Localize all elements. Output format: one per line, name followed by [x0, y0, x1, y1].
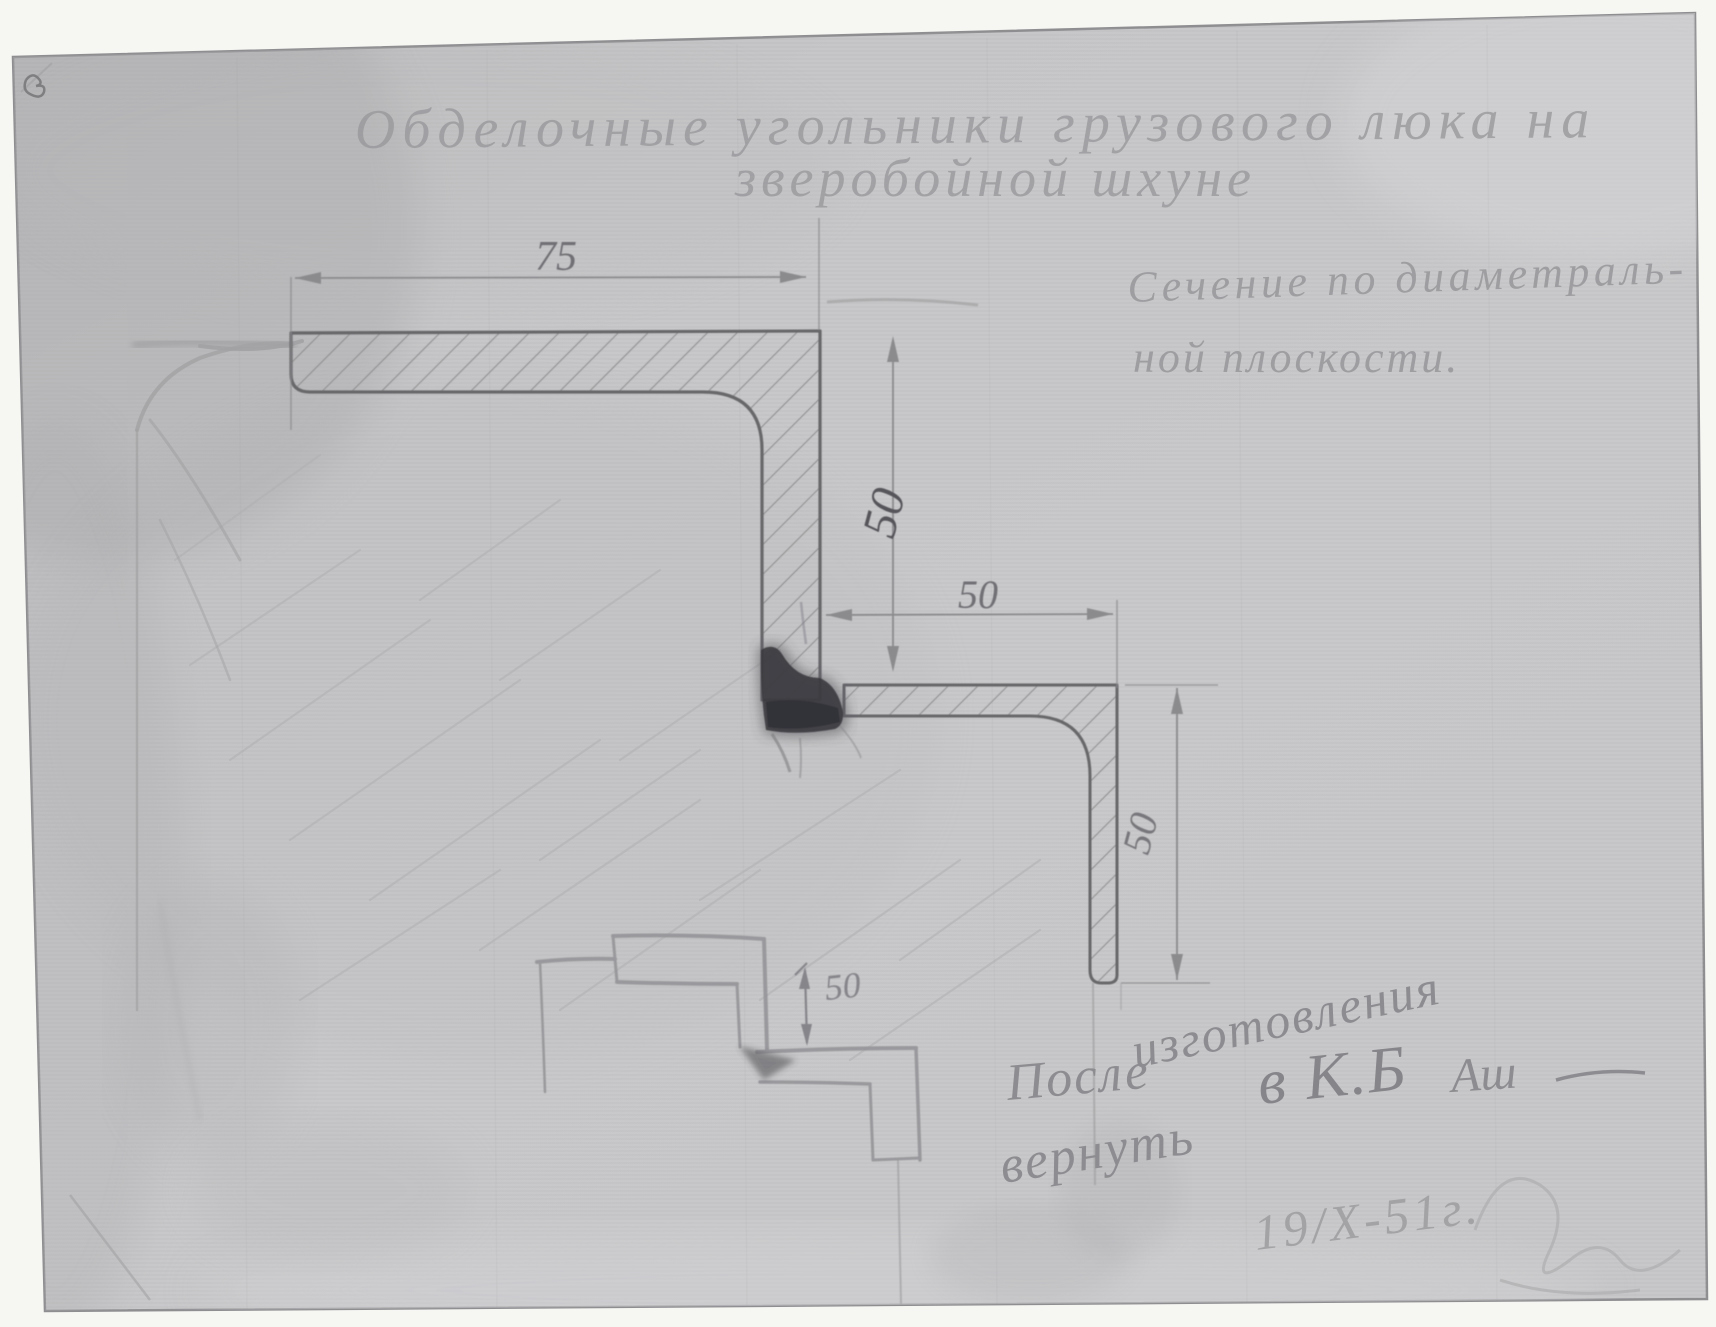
svg-text:ной плоскости.: ной плоскости.: [1133, 333, 1460, 382]
svg-text:50: 50: [823, 964, 863, 1008]
svg-text:75: 75: [535, 234, 577, 280]
svg-text:Аш: Аш: [1446, 1046, 1518, 1104]
svg-text:50: 50: [958, 572, 998, 617]
svg-text:зверобойной шхуне: зверобойной шхуне: [734, 148, 1256, 208]
